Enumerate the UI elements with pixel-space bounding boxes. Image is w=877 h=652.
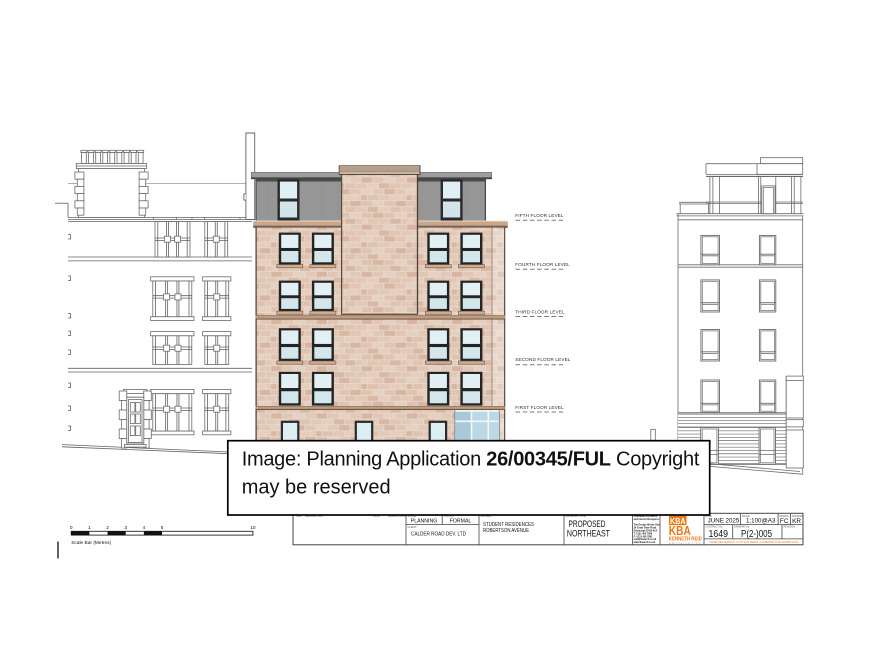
- svg-text:Image: Planning Application 26: Image: Planning Application 26/00345/FUL…: [242, 448, 700, 470]
- svg-text:FOURTH FLOOR LEVEL: FOURTH FLOOR LEVEL: [515, 262, 570, 267]
- svg-text:1: 1: [88, 525, 91, 531]
- svg-text:KR: KR: [792, 518, 801, 525]
- svg-text:CALDER ROAD DEV. LTD: CALDER ROAD DEV. LTD: [411, 531, 466, 537]
- svg-text:THIRD FLOOR LEVEL: THIRD FLOOR LEVEL: [515, 310, 565, 315]
- svg-text:10: 10: [250, 525, 256, 531]
- svg-text:2: 2: [106, 525, 109, 531]
- svg-text:ROBERTSON AVENUE: ROBERTSON AVENUE: [483, 528, 529, 534]
- svg-text:PROPOSED: PROPOSED: [569, 519, 606, 529]
- svg-text:0: 0: [70, 525, 73, 531]
- svg-text:NORTHEAST: NORTHEAST: [567, 529, 610, 539]
- svg-text:Scale Bar (Metres): Scale Bar (Metres): [71, 540, 111, 546]
- svg-text:FIRST FLOOR LEVEL: FIRST FLOOR LEVEL: [515, 405, 564, 410]
- svg-text:STUDENT RESIDENCES: STUDENT RESIDENCES: [483, 522, 534, 528]
- svg-text:P(2-)005: P(2-)005: [741, 529, 772, 540]
- svg-text:PLANNING: PLANNING: [411, 518, 438, 524]
- svg-text:A R C H I T E C T S: A R C H I T E C T S: [669, 542, 701, 546]
- svg-text:FORMAL: FORMAL: [450, 518, 472, 524]
- svg-text:JUNE 2025: JUNE 2025: [708, 518, 740, 525]
- svg-text:4: 4: [143, 525, 146, 531]
- svg-text:and Interior Designers: and Interior Designers: [634, 518, 660, 521]
- svg-text:1:100@A3: 1:100@A3: [746, 518, 776, 525]
- svg-text:3: 3: [124, 525, 127, 531]
- svg-text:www.kraarch.co.uk: www.kraarch.co.uk: [634, 541, 656, 544]
- svg-text:1649: 1649: [709, 529, 729, 540]
- svg-text:REVISION: REVISION: [784, 526, 796, 529]
- svg-text:may be reserved: may be reserved: [242, 476, 391, 498]
- svg-text:© KENNETH REID ARCHITECTS - DO: © KENNETH REID ARCHITECTS - DO NOT SCALE…: [709, 540, 799, 544]
- svg-text:SECOND FLOOR LEVEL: SECOND FLOOR LEVEL: [515, 357, 570, 362]
- svg-text:FIFTH FLOOR LEVEL: FIFTH FLOOR LEVEL: [515, 213, 564, 218]
- svg-text:5: 5: [161, 525, 164, 531]
- svg-text:FC: FC: [780, 518, 789, 525]
- svg-text:CLIENT: CLIENT: [408, 525, 418, 529]
